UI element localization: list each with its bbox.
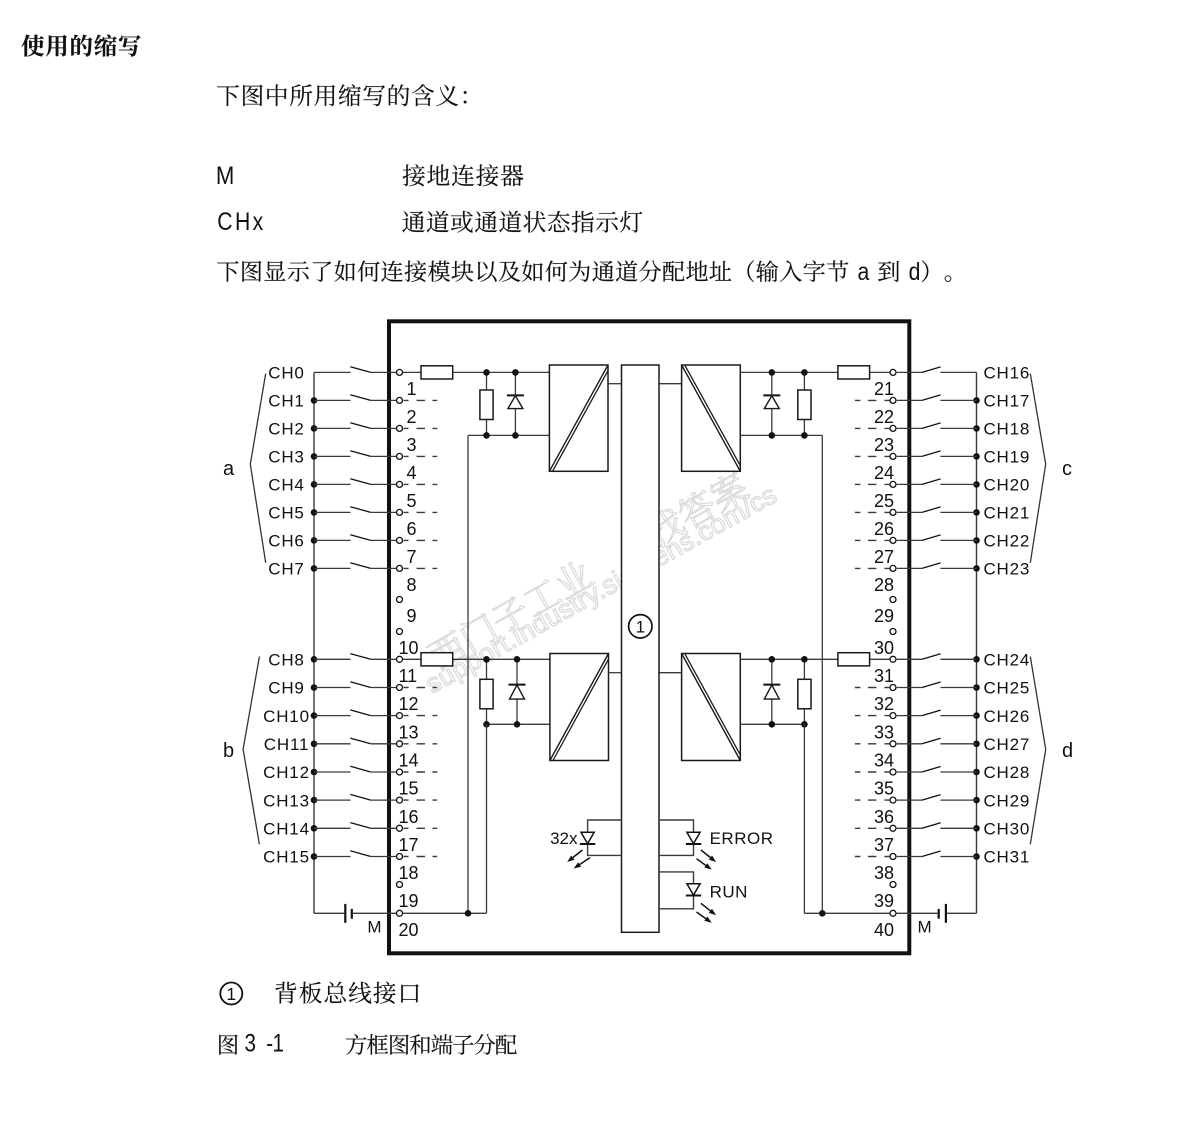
svg-text:25: 25	[874, 491, 894, 511]
svg-text:30: 30	[874, 638, 894, 658]
svg-text:CH18: CH18	[983, 420, 1030, 439]
svg-text:M: M	[918, 918, 932, 937]
svg-text:CH6: CH6	[268, 532, 304, 551]
svg-text:28: 28	[874, 575, 894, 595]
svg-text:CH25: CH25	[983, 679, 1030, 698]
svg-text:CH13: CH13	[263, 791, 310, 810]
svg-text:2: 2	[407, 407, 417, 427]
svg-text:d: d	[1062, 740, 1073, 762]
svg-text:1: 1	[273, 1029, 284, 1057]
svg-text:CH31: CH31	[983, 848, 1030, 867]
svg-text:ERROR: ERROR	[710, 829, 774, 848]
svg-text:15: 15	[399, 779, 419, 799]
svg-text:31: 31	[874, 666, 894, 686]
svg-text:M: M	[367, 918, 381, 937]
svg-text:CH26: CH26	[983, 707, 1030, 726]
svg-text:18: 18	[399, 863, 419, 883]
svg-text:CHx: CHx	[217, 208, 265, 236]
svg-text:1: 1	[407, 379, 417, 399]
svg-text:6: 6	[407, 519, 417, 539]
svg-text:CH4: CH4	[268, 476, 304, 495]
svg-text:35: 35	[874, 779, 894, 799]
svg-text:39: 39	[874, 891, 894, 911]
svg-text:1: 1	[636, 618, 645, 637]
svg-text:CH8: CH8	[268, 651, 304, 670]
svg-text:CH22: CH22	[983, 532, 1030, 551]
svg-text:CH27: CH27	[983, 735, 1030, 754]
svg-text:CH17: CH17	[983, 392, 1030, 411]
svg-text:CH23: CH23	[983, 560, 1030, 579]
svg-text:CH19: CH19	[983, 448, 1030, 467]
svg-text:CH3: CH3	[268, 448, 304, 467]
svg-text:33: 33	[874, 722, 894, 742]
svg-text:1: 1	[226, 984, 236, 1004]
svg-text:24: 24	[874, 463, 894, 483]
svg-text:CH0: CH0	[268, 364, 304, 383]
svg-text:22: 22	[874, 407, 894, 427]
svg-text:CH29: CH29	[983, 791, 1030, 810]
svg-text:c: c	[1062, 458, 1072, 480]
svg-text:3: 3	[245, 1029, 256, 1057]
svg-text:5: 5	[407, 491, 417, 511]
svg-text:b: b	[223, 740, 234, 762]
svg-text:CH7: CH7	[268, 560, 304, 579]
svg-text:21: 21	[874, 379, 894, 399]
svg-text:RUN: RUN	[710, 883, 748, 902]
svg-text:8: 8	[407, 575, 417, 595]
svg-text:34: 34	[874, 751, 894, 771]
svg-text:CH10: CH10	[263, 707, 310, 726]
svg-text:CH5: CH5	[268, 504, 304, 523]
svg-text:CH24: CH24	[983, 651, 1030, 670]
svg-text:32x: 32x	[550, 829, 578, 848]
svg-text:a: a	[223, 458, 235, 480]
svg-text:26: 26	[874, 519, 894, 539]
svg-text:CH15: CH15	[263, 848, 310, 867]
svg-text:10: 10	[399, 638, 419, 658]
svg-text:d: d	[909, 257, 921, 285]
svg-text:20: 20	[399, 920, 419, 940]
svg-text:a: a	[858, 257, 870, 285]
svg-text:38: 38	[874, 863, 894, 883]
svg-text:12: 12	[399, 694, 419, 714]
svg-text:CH12: CH12	[263, 763, 310, 782]
svg-text:CH21: CH21	[983, 504, 1030, 523]
svg-text:17: 17	[399, 835, 419, 855]
svg-text:27: 27	[874, 547, 894, 567]
svg-text:CH30: CH30	[983, 820, 1030, 839]
svg-text:4: 4	[407, 463, 417, 483]
svg-text:7: 7	[407, 547, 417, 567]
svg-text:40: 40	[874, 920, 894, 940]
svg-text:CH16: CH16	[983, 364, 1030, 383]
svg-text:CH9: CH9	[268, 679, 304, 698]
svg-text:CH28: CH28	[983, 763, 1030, 782]
svg-text:23: 23	[874, 435, 894, 455]
svg-text:CH1: CH1	[268, 392, 304, 411]
svg-text:37: 37	[874, 835, 894, 855]
svg-text:36: 36	[874, 807, 894, 827]
svg-text:9: 9	[407, 606, 417, 626]
svg-text:14: 14	[399, 751, 419, 771]
svg-text:CH11: CH11	[264, 735, 309, 754]
svg-text:CH2: CH2	[268, 420, 304, 439]
svg-text:CH14: CH14	[263, 820, 310, 839]
svg-text:M: M	[216, 162, 234, 189]
svg-text:11: 11	[399, 666, 418, 686]
svg-text:13: 13	[399, 722, 419, 742]
svg-text:3: 3	[407, 435, 417, 455]
svg-text:16: 16	[399, 807, 419, 827]
svg-text:CH20: CH20	[983, 476, 1030, 495]
svg-text:19: 19	[399, 891, 419, 911]
svg-text:29: 29	[874, 606, 894, 626]
svg-text:32: 32	[874, 694, 894, 714]
